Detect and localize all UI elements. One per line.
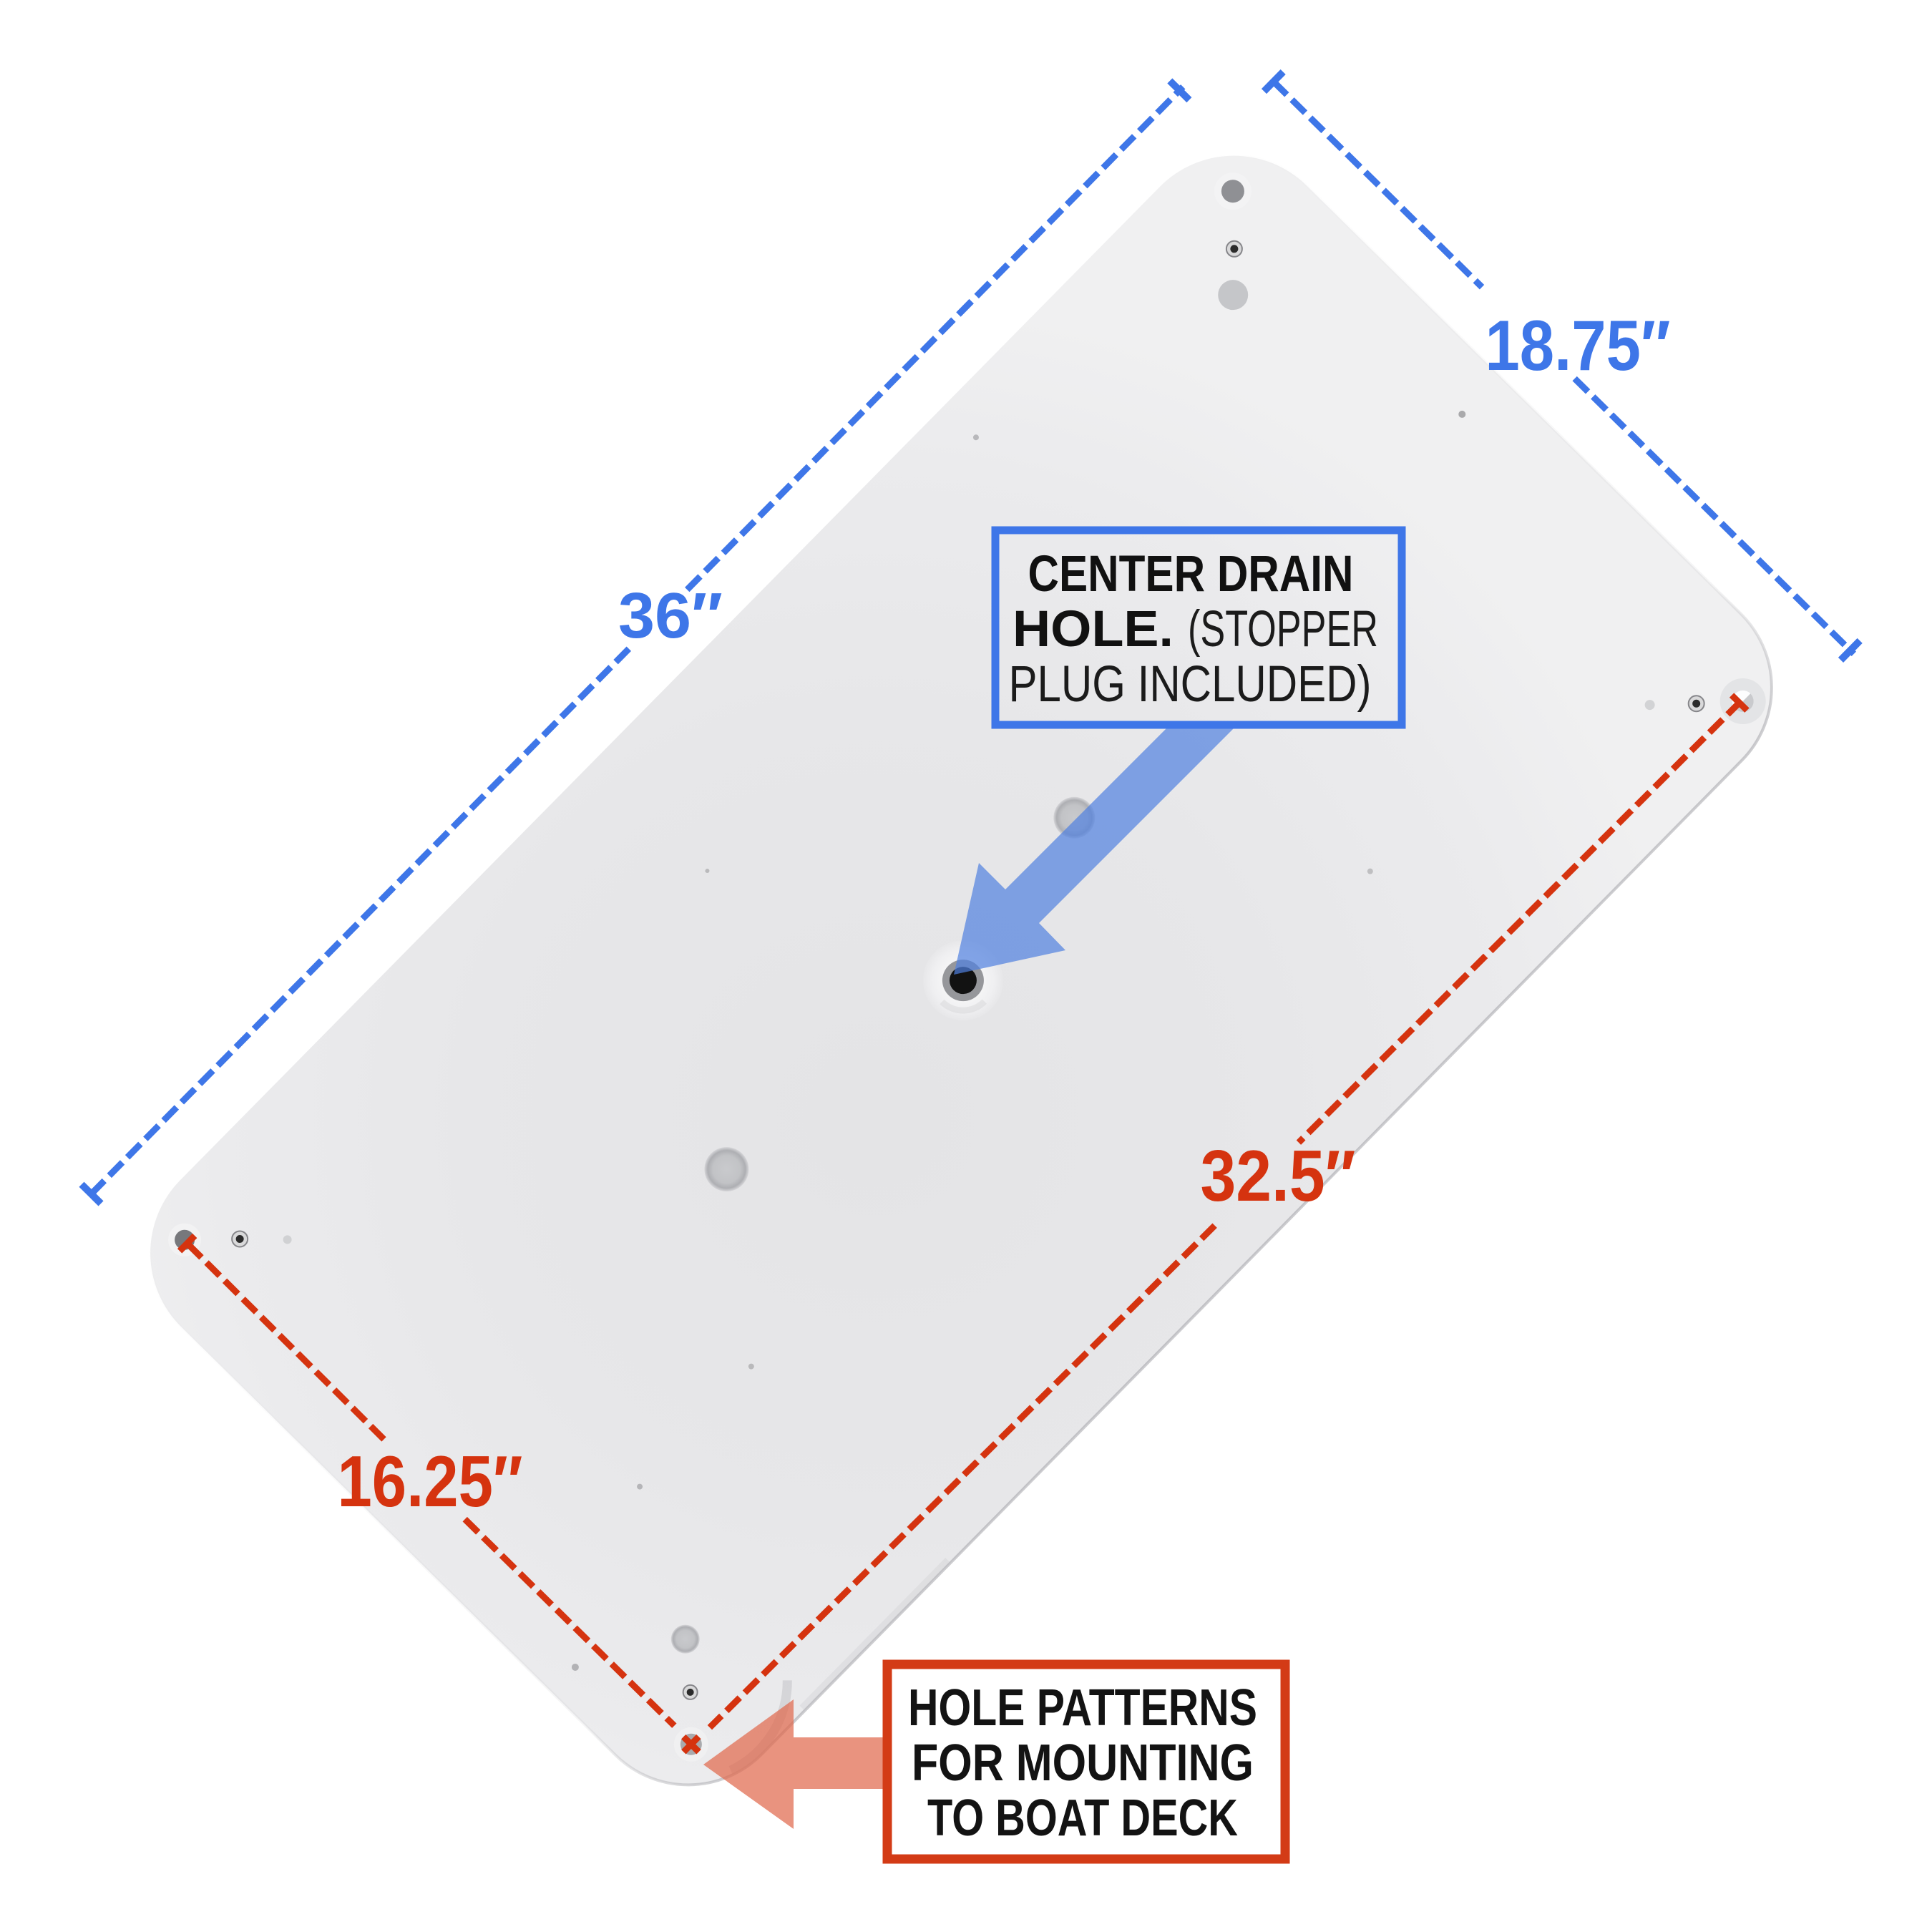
svg-text:PLUG INCLUDED): PLUG INCLUDED) bbox=[1009, 656, 1372, 713]
svg-text:HOLE PATTERNS: HOLE PATTERNS bbox=[908, 1679, 1257, 1737]
svg-text:18.75″: 18.75″ bbox=[1485, 306, 1671, 385]
svg-text:TO BOAT DECK: TO BOAT DECK bbox=[927, 1790, 1238, 1847]
svg-text:16.25″: 16.25″ bbox=[338, 1442, 523, 1522]
svg-text:FOR MOUNTING: FOR MOUNTING bbox=[912, 1735, 1254, 1792]
svg-text:36″: 36″ bbox=[618, 580, 723, 652]
svg-text:CENTER DRAIN: CENTER DRAIN bbox=[1028, 546, 1354, 602]
svg-text:(STOPPER: (STOPPER bbox=[1188, 601, 1378, 658]
svg-text:HOLE.: HOLE. bbox=[1013, 601, 1174, 658]
svg-text:32.5″: 32.5″ bbox=[1201, 1136, 1356, 1216]
